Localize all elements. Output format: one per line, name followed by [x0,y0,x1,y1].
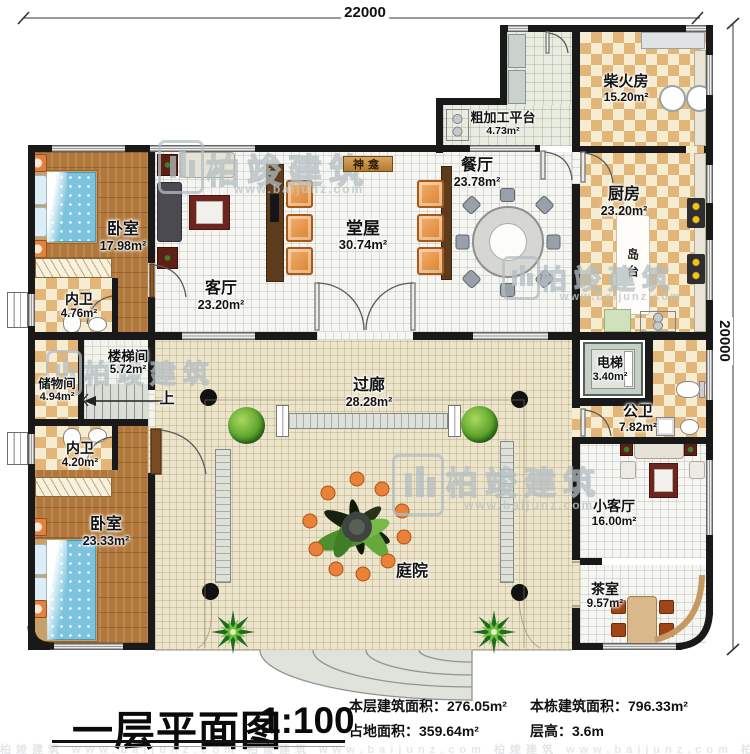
wall-segment [572,608,580,650]
window [473,332,548,340]
room-label-living: 客厅 23.20m² [198,280,245,312]
room-label-elevator: 电梯 3.40m² [593,356,628,383]
window [706,165,713,203]
watermark-logo [502,256,540,300]
window [52,145,125,152]
sink [680,419,699,435]
tv-cabinet [157,247,178,269]
wall-segment [148,145,155,263]
sliding-door-panel [508,34,526,68]
door-opening [572,152,580,184]
wall-segment [255,332,317,340]
room-area: 7.82m² [619,421,657,434]
room-label-bath-bottom: 内卫 4.20m² [62,441,98,470]
door-opening [686,146,704,153]
coffee-table [196,201,223,224]
pillow [33,544,47,575]
room-label-prep-platform: 粗加工平台 4.73m² [470,111,535,137]
room-area: 23.20m² [198,298,245,312]
cabinet [620,443,633,456]
opening [148,390,155,427]
kitchen-sink [640,311,676,332]
room-label-courtyard: 庭院 [396,563,428,581]
room-label-tea-room: 茶室 9.57m² [587,582,623,611]
room-area: 5.72m² [108,364,149,377]
watermark-brand: 柏竣建筑 [84,354,216,391]
kitchen-counter [694,153,706,332]
room-name: 小客厅 [592,499,637,515]
room-area: 4.20m² [62,457,98,470]
room-area: 4.76m² [61,308,97,321]
watermark-url: www.baijunz.com [560,291,682,303]
window [706,55,713,95]
stat-label: 本栋建筑面积： [530,698,628,714]
stat-value: 3.6m [572,723,604,739]
sliding-door-panel [508,70,526,104]
wall-segment [28,145,35,650]
room-area: 9.57m² [587,598,623,611]
room-label-dining: 餐厅 23.78m² [454,157,501,189]
window [686,25,706,32]
room-name: 柴火房 [603,74,648,91]
door-opening [572,408,580,437]
tea-chair [659,600,674,614]
column [200,389,217,406]
prep-sink [446,109,469,141]
tea-chair [659,623,674,637]
room-name: 储物间 [38,377,76,391]
bush [461,406,498,443]
tv [270,194,279,222]
wardrobe-bottom [35,477,112,497]
pillow [33,207,47,237]
floor-plan: 岛台 [0,0,750,754]
room-name: 卧室 [100,221,147,239]
column [202,583,219,600]
room-name: 卧室 [83,516,130,534]
room-name: 楼梯间 [108,349,149,364]
window [706,240,713,300]
toilet-tank [699,381,705,398]
wall-segment [500,25,712,32]
watermark-logo [158,140,204,194]
door-opening [317,332,413,340]
coffee-table [654,469,673,492]
shrine-banner: 神龛 [343,156,393,172]
stat-total-area: 本栋建筑面积：796.33m² [530,696,688,716]
armchair [689,461,705,479]
watermark-url: www.baijunz.com [234,182,364,196]
bed-blanket-top [47,172,67,242]
wall-segment [436,98,443,153]
dimension-height: 20000 [716,317,733,365]
dimension-width: 22000 [341,4,389,21]
room-label-bedroom-bottom: 卧室 23.33m² [83,516,130,548]
title-underline-thin [52,746,345,747]
room-area: 28.28m² [346,395,393,409]
wall-segment [572,32,580,146]
tea-chair [611,623,626,637]
wall-segment [112,426,118,470]
bench-post [276,405,289,437]
room-area: 23.78m² [454,175,501,189]
room-name: 厨房 [601,186,648,204]
dining-chair [500,188,515,202]
room-area: 3.40m² [593,371,628,383]
room-label-public-bath: 公卫 7.82m² [619,404,657,434]
room-name: 茶室 [587,582,623,598]
title-underline [52,740,345,743]
bed-blanket-bottom [47,540,67,640]
cabinet [684,443,697,456]
dining-chair [547,235,561,250]
room-label-kitchen: 厨房 23.20m² [601,186,648,218]
room-name: 庭院 [396,563,428,581]
stat-value: 796.33m² [628,698,688,714]
window [28,294,35,326]
wall-segment [548,332,712,340]
dining-chair [456,235,470,250]
wall-segment [500,25,507,105]
window [706,350,713,400]
room-name: 餐厅 [454,157,501,175]
bush [228,407,265,444]
watermark-logo [392,454,444,516]
courtyard-bench [288,413,448,429]
column [511,391,528,408]
wall-segment [28,419,155,426]
kitchen-mat [604,309,631,332]
bay-window [7,432,28,465]
hall-chair [286,247,313,275]
window [50,643,123,650]
room-name: 堂屋 [339,219,387,238]
room-label-bath-top: 内卫 4.76m² [61,292,97,321]
gas-stove [687,198,705,228]
stat-value: 359.64m² [419,723,479,739]
room-label-hall: 堂屋 30.74m² [339,219,387,253]
room-label-storage: 储物间 4.94m² [38,377,76,403]
wall-segment [436,98,507,105]
tea-table [627,596,657,646]
door-opening [148,427,155,473]
stairs-up-label: 上 [159,391,174,408]
bench-post [448,405,461,437]
room-area: 23.33m² [83,534,130,548]
window [706,460,713,535]
door-opening [148,263,155,297]
wall-segment [580,437,712,444]
room-area: 17.98m² [100,239,147,253]
room-area: 4.94m² [38,391,76,403]
window [603,643,676,650]
room-name: 电梯 [593,356,628,371]
stat-label: 层高： [530,723,572,739]
stat-value: 276.05m² [447,698,507,714]
room-area: 23.20m² [601,204,648,218]
wall-segment [413,332,473,340]
stat-label: 占地面积： [349,723,419,739]
room-label-bedroom-top: 卧室 17.98m² [100,221,147,253]
hall-chair [417,214,444,242]
stat-floor-area: 本层建筑面积：276.05m² [349,696,507,716]
room-area: 30.74m² [339,238,387,253]
entrance-steps [260,650,472,701]
window [28,434,35,464]
room-area: 16.00m² [592,515,637,528]
room-label-firewood: 柴火房 15.20m² [603,74,648,104]
window [508,25,528,32]
wall-segment [112,278,118,332]
shrine-label: 神龛 [353,156,383,172]
opening [572,560,580,608]
toilet [676,381,700,398]
room-label-corridor: 过廊 28.28m² [346,377,393,409]
stairs-up-text: 上 [159,391,174,408]
window [182,332,255,340]
hall-chair [286,214,313,242]
wardrobe-top [35,258,112,278]
room-name: 内卫 [62,441,98,457]
wall-segment [148,473,155,650]
room-name: 公卫 [619,404,657,421]
room-label-small-living: 小客厅 16.00m² [592,499,637,528]
washer [656,417,675,436]
wall-segment [28,332,182,340]
gas-stove [687,254,705,284]
room-name: 粗加工平台 [470,111,535,126]
wall-segment [580,558,602,565]
stat-floor-height: 层高：3.6m [530,721,604,741]
firewood-counter-sink [641,32,705,49]
bay-window [7,292,28,328]
wall-segment [535,145,540,152]
room-name: 客厅 [198,280,245,298]
window [470,145,535,152]
stat-land-area: 占地面积：359.64m² [349,721,479,741]
watermark-url: www.baijunz.com [464,498,594,512]
title-scale: 1:100 [260,700,355,742]
wall-segment [580,146,686,153]
courtyard-bench [215,449,231,583]
column [511,584,528,601]
wall-segment [645,340,653,398]
room-name: 内卫 [61,292,97,308]
room-label-stairwell: 楼梯间 5.72m² [108,349,149,377]
armchair [620,461,636,479]
room-area: 4.73m² [470,126,535,138]
pillow [33,175,47,205]
room-name: 过廊 [346,377,393,395]
wood-stove [659,85,686,112]
room-area: 15.20m² [603,91,648,104]
hall-chair [417,247,444,275]
hall-chair [417,180,444,208]
stat-label: 本层建筑面积： [349,698,447,714]
